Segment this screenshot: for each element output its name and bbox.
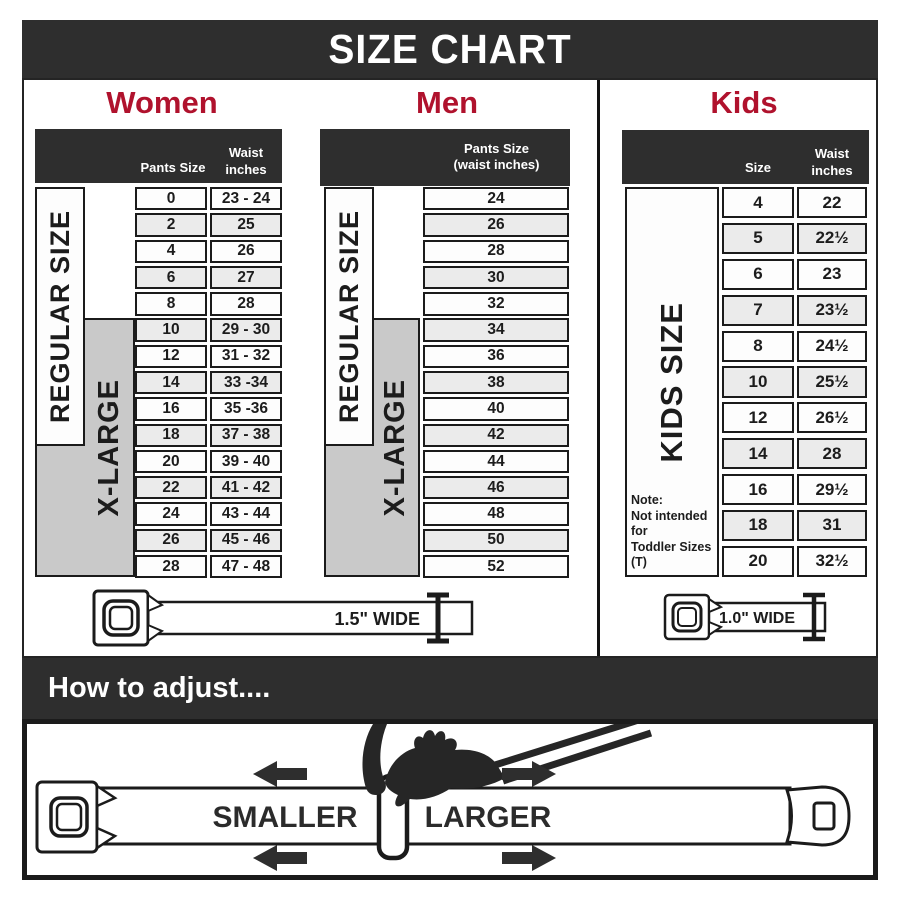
section-divider (597, 80, 600, 656)
men-pants-size-cell: 32 (423, 292, 569, 315)
smaller-label: SMALLER (213, 801, 358, 834)
kids-waist-cell: 28 (797, 438, 867, 469)
kids-size-cell: 16 (722, 474, 794, 505)
page-title: SIZE CHART (328, 26, 571, 73)
women-pants-size-column-header: Pants Size (135, 160, 211, 177)
kids-table-header: Size Waist inches (622, 130, 869, 184)
kids-size-cell: 18 (722, 510, 794, 541)
womens-belt-illustration: 1.5" WIDE (90, 586, 510, 650)
women-pants-size-cell: 8 (135, 292, 207, 315)
men-pants-size-cell: 46 (423, 476, 569, 499)
men-pants-size-cell: 24 (423, 187, 569, 210)
men-pants-size-cell: 50 (423, 529, 569, 552)
men-size-table: 24 26 28 30 32 34 36 38 40 42 44 46 (423, 187, 569, 578)
kids-size-cell: 10 (722, 366, 794, 397)
men-regular-size-label: REGULAR SIZE (324, 187, 374, 446)
men-pants-size-column-header: Pants Size (waist inches) (423, 141, 570, 175)
adjust-illustration-panel: SMALLER LARGER (22, 719, 878, 880)
women-pants-size-cell: 12 (135, 345, 207, 368)
men-pants-size-cell: 52 (423, 555, 569, 578)
women-pants-size-cell: 2 (135, 213, 207, 236)
women-waist-cell: 27 (210, 266, 282, 289)
kids-waist-cell: 22½ (797, 223, 867, 254)
women-pants-size-cell: 16 (135, 397, 207, 420)
men-table-header: Pants Size (waist inches) (320, 129, 570, 186)
belt-tip-hole (814, 803, 834, 829)
women-waist-cell: 23 - 24 (210, 187, 282, 210)
kids-waist-cell: 29½ (797, 474, 867, 505)
size-chart-page: SIZE CHART Women Men Kids Pants Size Wai… (0, 0, 900, 900)
women-size-table: 0 23 - 24 2 25 4 26 6 27 8 28 10 29 - 30… (135, 187, 282, 578)
kids-size-cell: 5 (722, 223, 794, 254)
women-pants-size-cell: 14 (135, 371, 207, 394)
women-waist-cell: 41 - 42 (210, 476, 282, 499)
men-xlarge-strip: X-LARGE (372, 320, 418, 575)
kids-belt-illustration: 1.0" WIDE (657, 588, 857, 648)
how-to-adjust-title: How to adjust.... (22, 672, 270, 705)
belt-width-label: 1.0" WIDE (719, 610, 795, 627)
women-waist-cell: 25 (210, 213, 282, 236)
kids-waist-cell: 31 (797, 510, 867, 541)
women-xlarge-strip: X-LARGE (85, 320, 133, 575)
kids-size-label-box: KIDS SIZE Note: Not intended for Toddler… (625, 187, 719, 577)
toddler-note: Note: Not intended for Toddler Sizes (T) (631, 493, 717, 571)
kids-waist-cell: 25½ (797, 366, 867, 397)
women-pants-size-cell: 18 (135, 424, 207, 447)
belt-adjust-illustration: SMALLER LARGER (27, 724, 873, 875)
women-waist-cell: 35 -36 (210, 397, 282, 420)
men-pants-size-cell: 48 (423, 502, 569, 525)
women-table-header: Pants Size Waist inches (35, 129, 282, 183)
women-waist-cell: 33 -34 (210, 371, 282, 394)
women-waist-column-header: Waist inches (210, 145, 282, 179)
women-waist-cell: 43 - 44 (210, 502, 282, 525)
men-pants-size-cell: 26 (423, 213, 569, 236)
women-pants-size-cell: 6 (135, 266, 207, 289)
men-pants-size-cell: 34 (423, 318, 569, 341)
women-waist-cell: 47 - 48 (210, 555, 282, 578)
women-waist-cell: 28 (210, 292, 282, 315)
men-pants-size-cell: 40 (423, 397, 569, 420)
women-pants-size-cell: 26 (135, 529, 207, 552)
kids-size-cell: 6 (722, 259, 794, 290)
women-pants-size-cell: 22 (135, 476, 207, 499)
women-waist-cell: 37 - 38 (210, 424, 282, 447)
kids-heading: Kids (664, 85, 824, 121)
kids-size-column-header: Size (722, 160, 794, 177)
kids-waist-column-header: Waist inches (797, 146, 867, 180)
belt-width-label: 1.5" WIDE (334, 609, 420, 629)
men-pants-size-cell: 36 (423, 345, 569, 368)
how-to-adjust-bar: How to adjust.... (22, 658, 878, 719)
kids-waist-cell: 24½ (797, 331, 867, 362)
women-pants-size-cell: 10 (135, 318, 207, 341)
belt-strap (147, 602, 472, 634)
men-pants-size-cell: 38 (423, 371, 569, 394)
women-pants-size-cell: 24 (135, 502, 207, 525)
men-pants-size-cell: 28 (423, 240, 569, 263)
title-bar: SIZE CHART (22, 20, 878, 78)
kids-size-cell: 8 (722, 331, 794, 362)
kids-waist-cell: 22 (797, 187, 867, 218)
size-tables-panel: Women Men Kids Pants Size Waist inches X… (22, 78, 878, 658)
women-pants-size-cell: 20 (135, 450, 207, 473)
kids-size-cell: 7 (722, 295, 794, 326)
kids-size-cell: 20 (722, 546, 794, 577)
men-pants-size-cell: 44 (423, 450, 569, 473)
women-pants-size-cell: 0 (135, 187, 207, 210)
women-waist-cell: 31 - 32 (210, 345, 282, 368)
women-waist-cell: 29 - 30 (210, 318, 282, 341)
women-waist-cell: 39 - 40 (210, 450, 282, 473)
women-pants-size-cell: 28 (135, 555, 207, 578)
kids-waist-cell: 23½ (797, 295, 867, 326)
kids-waist-cell: 26½ (797, 402, 867, 433)
kids-size-cell: 4 (722, 187, 794, 218)
kids-waist-cell: 32½ (797, 546, 867, 577)
larger-label: LARGER (425, 801, 552, 834)
kids-size-cell: 12 (722, 402, 794, 433)
women-waist-cell: 26 (210, 240, 282, 263)
men-pants-size-cell: 30 (423, 266, 569, 289)
women-heading: Women (82, 85, 242, 121)
men-heading: Men (367, 85, 527, 121)
kids-size-table: 4 22 5 22½ 6 23 7 23½ 8 24½ 10 25½ 12 26… (722, 187, 867, 577)
women-pants-size-cell: 4 (135, 240, 207, 263)
women-waist-cell: 45 - 46 (210, 529, 282, 552)
men-pants-size-cell: 42 (423, 424, 569, 447)
women-regular-size-label: REGULAR SIZE (35, 187, 85, 446)
kids-size-cell: 14 (722, 438, 794, 469)
kids-waist-cell: 23 (797, 259, 867, 290)
